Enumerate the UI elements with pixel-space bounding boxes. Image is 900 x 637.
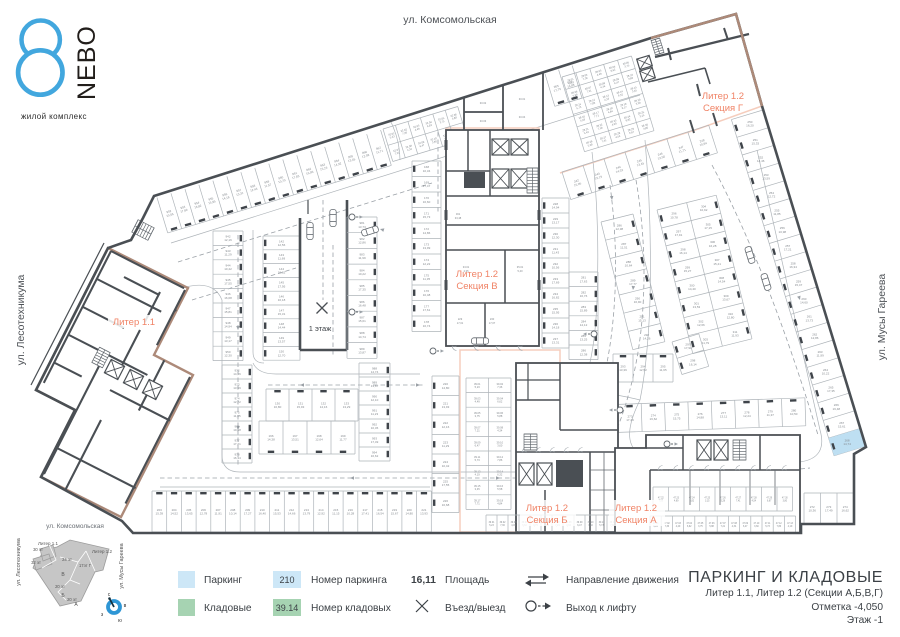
svg-text:3,75: 3,75 [475, 414, 481, 418]
svg-text:3,80: 3,80 [783, 500, 788, 502]
svg-text:5,88: 5,88 [497, 414, 503, 418]
svg-text:6,32: 6,32 [497, 473, 503, 477]
svg-text:13,57: 13,57 [278, 340, 286, 344]
svg-text:10,64: 10,64 [625, 264, 633, 268]
svg-text:7,21: 7,21 [721, 526, 726, 528]
svg-text:16,54: 16,54 [376, 512, 384, 516]
svg-text:14,46: 14,46 [233, 372, 241, 376]
svg-text:Литер 1.2: Литер 1.2 [92, 549, 112, 554]
svg-text:14,18: 14,18 [552, 326, 560, 330]
svg-text:5,73: 5,73 [765, 526, 770, 528]
svg-text:Литер 1.1, Литер 1.2 (Секции А: Литер 1.1, Литер 1.2 (Секции А,Б,В,Г) [705, 588, 883, 599]
svg-text:ул. Мусы Гареева: ул. Мусы Гареева [876, 274, 888, 361]
svg-text:13,93: 13,93 [420, 512, 428, 516]
svg-text:Номер паркинга: Номер паркинга [311, 575, 387, 586]
svg-text:6,47: 6,47 [743, 526, 748, 528]
svg-text:Литер 1.2: Литер 1.2 [526, 503, 568, 514]
svg-text:16,18: 16,18 [278, 298, 286, 302]
svg-text:5,88: 5,88 [709, 526, 714, 528]
svg-text:11,29: 11,29 [224, 253, 232, 257]
svg-text:17,61: 17,61 [423, 308, 431, 312]
svg-text:5,58: 5,58 [497, 487, 503, 491]
svg-text:13,17: 13,17 [224, 339, 232, 343]
svg-text:16,82: 16,82 [552, 296, 560, 300]
svg-text:39.14: 39.14 [276, 603, 299, 613]
svg-text:10,56: 10,56 [552, 266, 560, 270]
svg-text:Направление движения: Направление движения [566, 575, 679, 586]
svg-text:6,47: 6,47 [475, 443, 481, 447]
svg-text:7,21: 7,21 [475, 429, 481, 433]
svg-text:47.09: 47.09 [742, 523, 748, 525]
svg-text:17,49: 17,49 [371, 440, 379, 444]
svg-text:47.04: 47.04 [686, 523, 692, 525]
svg-text:39.02: 39.02 [500, 522, 506, 524]
svg-text:11,77: 11,77 [339, 438, 347, 442]
svg-text:39.01: 39.01 [489, 522, 495, 524]
svg-text:30.01: 30.01 [519, 97, 526, 101]
svg-text:16,34: 16,34 [789, 265, 797, 269]
svg-text:47.23: 47.23 [673, 498, 679, 500]
svg-text:жилой комплекс: жилой комплекс [21, 112, 87, 121]
svg-text:ул. Комсомольская: ул. Комсомольская [46, 523, 104, 530]
svg-text:11,51: 11,51 [620, 245, 628, 249]
svg-text:Литер 1.2: Литер 1.2 [456, 269, 498, 280]
svg-text:14,38: 14,38 [267, 438, 275, 442]
svg-text:3,75: 3,75 [698, 526, 703, 528]
svg-text:13,73: 13,73 [358, 225, 366, 229]
svg-text:10,98: 10,98 [233, 428, 241, 432]
svg-text:4,49: 4,49 [511, 525, 516, 527]
svg-text:4,49: 4,49 [676, 526, 681, 528]
svg-text:А: А [74, 602, 78, 608]
svg-text:14,40: 14,40 [688, 287, 696, 291]
svg-text:17,21: 17,21 [233, 442, 241, 446]
svg-text:47.25: 47.25 [704, 498, 710, 500]
svg-text:230: 230 [490, 317, 495, 321]
svg-text:4,69: 4,69 [674, 500, 679, 502]
svg-text:12,72: 12,72 [768, 194, 776, 198]
svg-text:15,53: 15,53 [273, 512, 281, 516]
svg-text:Паркинг: Паркинг [204, 575, 242, 586]
svg-text:13,79: 13,79 [303, 512, 311, 516]
svg-text:16,34: 16,34 [233, 456, 241, 460]
svg-text:Номер кладовых: Номер кладовых [311, 603, 391, 614]
svg-text:14,12: 14,12 [580, 323, 588, 327]
svg-text:16,20: 16,20 [746, 124, 754, 128]
svg-text:5,28: 5,28 [721, 500, 726, 502]
svg-text:10,82: 10,82 [278, 271, 286, 275]
svg-text:в: в [124, 603, 127, 609]
svg-text:4,49: 4,49 [475, 400, 481, 404]
svg-text:10,22: 10,22 [358, 272, 366, 276]
svg-text:17,49: 17,49 [626, 418, 634, 422]
svg-text:Литер 1.2: Литер 1.2 [702, 91, 744, 102]
svg-text:ул. Лесотехникума: ул. Лесотехникума [15, 274, 27, 365]
svg-text:11,99: 11,99 [358, 256, 366, 260]
svg-text:13,53: 13,53 [693, 305, 701, 309]
svg-text:13,59: 13,59 [233, 386, 241, 390]
svg-text:15,33: 15,33 [752, 141, 760, 145]
svg-text:ПАРКИНГ И КЛАДОВЫЕ: ПАРКИНГ И КЛАДОВЫЕ [688, 569, 883, 586]
svg-text:13,29: 13,29 [343, 405, 351, 409]
svg-text:17,27: 17,27 [244, 512, 252, 516]
svg-text:16,80: 16,80 [274, 405, 282, 409]
svg-text:13,87: 13,87 [358, 350, 366, 354]
svg-text:7,71: 7,71 [475, 502, 481, 506]
svg-text:47.22: 47.22 [658, 498, 664, 500]
svg-text:14,74: 14,74 [358, 335, 366, 339]
svg-text:15,27: 15,27 [684, 269, 692, 273]
svg-text:16,48: 16,48 [833, 407, 841, 411]
svg-text:16,62: 16,62 [841, 509, 849, 513]
svg-text:11,99: 11,99 [816, 354, 824, 358]
svg-text:Секция Б: Секция Б [526, 515, 567, 526]
svg-text:10,50: 10,50 [790, 412, 798, 416]
svg-text:39.11: 39.11 [599, 522, 605, 524]
svg-text:14,46: 14,46 [757, 159, 765, 163]
svg-text:229: 229 [458, 317, 463, 321]
svg-text:16,68: 16,68 [224, 296, 232, 300]
svg-text:47.27: 47.27 [735, 498, 741, 500]
svg-text:30.03: 30.03 [480, 119, 487, 123]
svg-text:17,21: 17,21 [784, 248, 792, 252]
svg-text:10,22: 10,22 [822, 371, 830, 375]
svg-text:11,43: 11,43 [552, 251, 560, 255]
svg-text:Литер 1.2: Литер 1.2 [615, 503, 657, 514]
svg-text:ул. Лесотехникума: ул. Лесотехникума [16, 537, 22, 586]
svg-text:10,42: 10,42 [442, 464, 450, 468]
svg-text:39.03: 39.03 [511, 522, 517, 524]
svg-text:15,81: 15,81 [224, 310, 232, 314]
svg-text:16,28: 16,28 [709, 244, 717, 248]
svg-text:Отметка -4,050: Отметка -4,050 [811, 602, 883, 613]
svg-text:12,86: 12,86 [358, 241, 366, 245]
svg-text:13,17: 13,17 [552, 221, 560, 225]
svg-text:12,16: 12,16 [442, 425, 450, 429]
svg-text:10,36: 10,36 [808, 509, 816, 513]
svg-text:13,39: 13,39 [619, 368, 627, 372]
svg-text:4,54: 4,54 [752, 500, 757, 502]
svg-text:15,93: 15,93 [297, 405, 305, 409]
svg-text:17,41: 17,41 [361, 512, 369, 516]
svg-text:Въезд/выезд: Въезд/выезд [445, 603, 505, 614]
svg-text:15,61: 15,61 [838, 425, 846, 429]
svg-text:15,13: 15,13 [638, 318, 646, 322]
svg-text:11,85: 11,85 [233, 414, 241, 418]
svg-text:ю: ю [118, 618, 122, 624]
svg-text:7,36: 7,36 [665, 526, 670, 528]
svg-text:6,62: 6,62 [687, 526, 692, 528]
svg-text:Секция А: Секция А [615, 515, 657, 526]
svg-text:16,90: 16,90 [634, 300, 642, 304]
svg-text:Площадь: Площадь [445, 575, 489, 586]
svg-text:47.11: 47.11 [765, 523, 771, 525]
svg-text:17,55: 17,55 [224, 281, 232, 285]
svg-text:ул. Мусы Гареева: ул. Мусы Гареева [119, 542, 125, 588]
svg-text:14,26: 14,26 [643, 337, 651, 341]
svg-text:33,48: 33,48 [455, 216, 462, 220]
svg-text:15,31: 15,31 [278, 312, 286, 316]
svg-text:16,74: 16,74 [423, 324, 431, 328]
svg-text:3,60: 3,60 [497, 443, 503, 447]
svg-text:13,65: 13,65 [185, 512, 193, 516]
svg-text:Кладовые: Кладовые [204, 603, 252, 614]
svg-text:14,74: 14,74 [371, 370, 379, 374]
svg-text:32 эт: 32 эт [31, 560, 41, 565]
svg-text:031: 031 [456, 212, 461, 216]
svg-text:16,48: 16,48 [358, 303, 366, 307]
svg-text:14,60: 14,60 [800, 301, 808, 305]
svg-text:15,47: 15,47 [795, 283, 803, 287]
svg-text:17,35: 17,35 [358, 288, 366, 292]
svg-text:10,36: 10,36 [371, 426, 379, 430]
svg-text:10,42: 10,42 [224, 267, 232, 271]
svg-text:3,60: 3,60 [588, 525, 593, 527]
svg-text:12,56: 12,56 [278, 243, 286, 247]
svg-text:15,95: 15,95 [552, 311, 560, 315]
svg-text:11,91: 11,91 [214, 512, 222, 516]
svg-text:13,11: 13,11 [720, 415, 728, 419]
svg-text:47.30: 47.30 [782, 498, 788, 500]
svg-text:11,35: 11,35 [423, 277, 431, 281]
svg-text:17,77: 17,77 [629, 282, 637, 286]
svg-text:10,28: 10,28 [347, 512, 355, 516]
svg-text:13,31: 13,31 [552, 341, 560, 345]
svg-text:47.10: 47.10 [754, 523, 760, 525]
svg-text:17,95: 17,95 [278, 284, 286, 288]
svg-text:14,16: 14,16 [320, 405, 328, 409]
svg-text:47.03: 47.03 [675, 523, 681, 525]
svg-text:14,74: 14,74 [843, 442, 851, 446]
svg-text:17,49: 17,49 [825, 509, 833, 513]
svg-text:ул. Комсомольская: ул. Комсомольская [403, 14, 496, 26]
svg-text:16,62: 16,62 [650, 417, 658, 421]
svg-text:6,47: 6,47 [577, 525, 582, 527]
svg-text:7,86: 7,86 [497, 458, 503, 462]
svg-text:10,48: 10,48 [423, 293, 431, 297]
svg-text:30.04: 30.04 [519, 115, 526, 119]
svg-text:35.01: 35.01 [517, 265, 524, 269]
svg-text:11,93: 11,93 [731, 334, 739, 338]
svg-text:16,76: 16,76 [580, 294, 588, 298]
svg-text:13,73: 13,73 [806, 318, 814, 322]
svg-text:47.06: 47.06 [709, 523, 715, 525]
svg-text:13,67: 13,67 [722, 298, 730, 302]
svg-text:4,34: 4,34 [732, 526, 737, 528]
svg-text:14,94: 14,94 [552, 206, 560, 210]
svg-text:3,60: 3,60 [754, 526, 759, 528]
svg-text:39.09: 39.09 [577, 522, 583, 524]
svg-text:11,69: 11,69 [278, 257, 286, 261]
svg-text:10,14: 10,14 [229, 512, 237, 516]
svg-text:15,75: 15,75 [673, 416, 681, 420]
svg-text:13,59: 13,59 [762, 177, 770, 181]
svg-text:17,35: 17,35 [827, 389, 835, 393]
svg-text:10,98: 10,98 [779, 230, 787, 234]
svg-text:11,23: 11,23 [371, 412, 379, 416]
svg-text:39.10: 39.10 [588, 522, 594, 524]
svg-text:11,85: 11,85 [773, 212, 781, 216]
svg-text:16,14: 16,14 [689, 362, 697, 366]
svg-text:15,73: 15,73 [423, 215, 431, 219]
svg-text:5,23: 5,23 [653, 526, 658, 528]
svg-text:47.12: 47.12 [776, 523, 782, 525]
svg-text:14,88: 14,88 [696, 416, 704, 420]
svg-text:12,64: 12,64 [315, 438, 323, 442]
svg-text:12,70: 12,70 [278, 353, 286, 357]
svg-text:12,30: 12,30 [552, 236, 560, 240]
svg-text:14,94: 14,94 [224, 325, 232, 329]
svg-text:17,47: 17,47 [423, 184, 431, 188]
svg-text:24 эт: 24 эт [62, 557, 72, 562]
svg-text:15,41: 15,41 [713, 262, 721, 266]
svg-text:12,80: 12,80 [727, 316, 735, 320]
svg-text:14,44: 14,44 [278, 326, 286, 330]
svg-text:15,39: 15,39 [156, 512, 164, 516]
svg-text:Выход к лифту: Выход к лифту [566, 602, 637, 614]
svg-text:17,55: 17,55 [442, 483, 450, 487]
svg-text:47.07: 47.07 [720, 523, 726, 525]
svg-text:1 этаж: 1 этаж [309, 324, 331, 333]
svg-text:17,01: 17,01 [457, 321, 464, 325]
svg-text:13,25: 13,25 [580, 338, 588, 342]
svg-text:7,36: 7,36 [500, 525, 505, 527]
svg-text:5,73: 5,73 [599, 525, 604, 527]
svg-text:30.02: 30.02 [480, 101, 487, 105]
svg-text:12,10: 12,10 [371, 398, 379, 402]
svg-text:13,51: 13,51 [291, 438, 299, 442]
svg-text:17эт Г: 17эт Г [79, 563, 92, 568]
svg-text:12,66: 12,66 [697, 323, 705, 327]
svg-text:15,89: 15,89 [580, 309, 588, 313]
svg-text:15,61: 15,61 [358, 319, 366, 323]
svg-text:14,80: 14,80 [405, 512, 413, 516]
svg-text:14,52: 14,52 [170, 512, 178, 516]
svg-text:Литер 1.1: Литер 1.1 [113, 317, 155, 328]
svg-text:4,34: 4,34 [497, 429, 503, 433]
svg-text:12,38: 12,38 [616, 227, 624, 231]
svg-text:6,62: 6,62 [497, 400, 503, 404]
svg-text:Литер 1.1: Литер 1.1 [38, 541, 58, 546]
svg-text:47.24: 47.24 [689, 498, 695, 500]
svg-text:47.28: 47.28 [751, 498, 757, 500]
svg-text:NEBO: NEBO [73, 25, 101, 100]
svg-text:14,66: 14,66 [288, 512, 296, 516]
svg-text:15,67: 15,67 [391, 512, 399, 516]
svg-text:12,52: 12,52 [639, 368, 647, 372]
svg-text:30 эт: 30 эт [33, 547, 43, 552]
svg-text:Секция Г: Секция Г [703, 103, 743, 114]
svg-text:5,73: 5,73 [475, 458, 481, 462]
svg-text:Секция В: Секция В [456, 281, 497, 292]
svg-text:47.05: 47.05 [698, 523, 704, 525]
svg-text:17,69: 17,69 [552, 281, 560, 285]
svg-text:13,99: 13,99 [423, 246, 431, 250]
svg-text:3,45: 3,45 [475, 487, 481, 491]
svg-text:12,30: 12,30 [224, 353, 232, 357]
svg-text:10,34: 10,34 [423, 169, 431, 173]
svg-text:12,38: 12,38 [580, 352, 588, 356]
svg-text:17,91: 17,91 [675, 233, 683, 237]
svg-text:14,54: 14,54 [718, 280, 726, 284]
svg-text:17,15: 17,15 [704, 226, 712, 230]
svg-text:16,14: 16,14 [679, 251, 687, 255]
svg-text:12,22: 12,22 [423, 262, 431, 266]
svg-text:11,65: 11,65 [659, 368, 667, 372]
svg-text:4,19: 4,19 [788, 526, 793, 528]
svg-text:5,40: 5,40 [517, 269, 523, 273]
svg-text:Этаж -1: Этаж -1 [847, 615, 884, 626]
svg-text:4,19: 4,19 [475, 473, 481, 477]
svg-text:12,86: 12,86 [811, 336, 819, 340]
svg-text:7,86: 7,86 [777, 526, 782, 528]
svg-text:17,07: 17,07 [489, 321, 496, 325]
svg-text:11,37: 11,37 [767, 413, 775, 417]
svg-text:11,29: 11,29 [442, 444, 450, 448]
svg-text:10,78: 10,78 [670, 215, 678, 219]
svg-text:11,79: 11,79 [702, 341, 710, 345]
svg-text:11,15: 11,15 [332, 512, 340, 516]
svg-text:16,40: 16,40 [258, 512, 266, 516]
svg-text:16,62: 16,62 [371, 454, 379, 458]
svg-text:6,82: 6,82 [690, 500, 695, 502]
svg-text:20 эт: 20 эт [55, 584, 65, 589]
svg-text:7,36: 7,36 [497, 385, 503, 389]
svg-text:17,63: 17,63 [580, 279, 588, 283]
svg-text:14,80: 14,80 [442, 386, 450, 390]
svg-text:210: 210 [279, 575, 294, 585]
svg-text:з: з [101, 612, 104, 618]
svg-text:3,15: 3,15 [705, 500, 710, 502]
svg-text:12,24: 12,24 [743, 414, 751, 418]
svg-text:12,92: 12,92 [317, 512, 325, 516]
svg-text:47.13: 47.13 [787, 523, 793, 525]
svg-text:12,16: 12,16 [224, 238, 232, 242]
svg-text:13,87: 13,87 [371, 384, 379, 388]
svg-text:12,78: 12,78 [200, 512, 208, 516]
svg-text:16,68: 16,68 [442, 503, 450, 507]
svg-text:47.29: 47.29 [766, 498, 772, 500]
svg-text:4,84: 4,84 [497, 502, 503, 506]
svg-text:12,72: 12,72 [233, 400, 241, 404]
svg-text:5,23: 5,23 [489, 525, 494, 527]
svg-text:с: с [108, 592, 111, 598]
svg-text:5,23: 5,23 [475, 385, 481, 389]
svg-text:7,41: 7,41 [736, 500, 741, 502]
svg-text:47.08: 47.08 [731, 523, 737, 525]
svg-text:17,91: 17,91 [684, 346, 692, 350]
svg-text:47.26: 47.26 [720, 498, 726, 500]
svg-text:14,86: 14,86 [423, 231, 431, 235]
svg-text:10,92: 10,92 [700, 208, 708, 212]
svg-text:6,67: 6,67 [767, 500, 772, 502]
svg-text:16,11: 16,11 [411, 575, 436, 586]
svg-text:13,93: 13,93 [442, 405, 450, 409]
svg-text:16,60: 16,60 [423, 200, 431, 204]
